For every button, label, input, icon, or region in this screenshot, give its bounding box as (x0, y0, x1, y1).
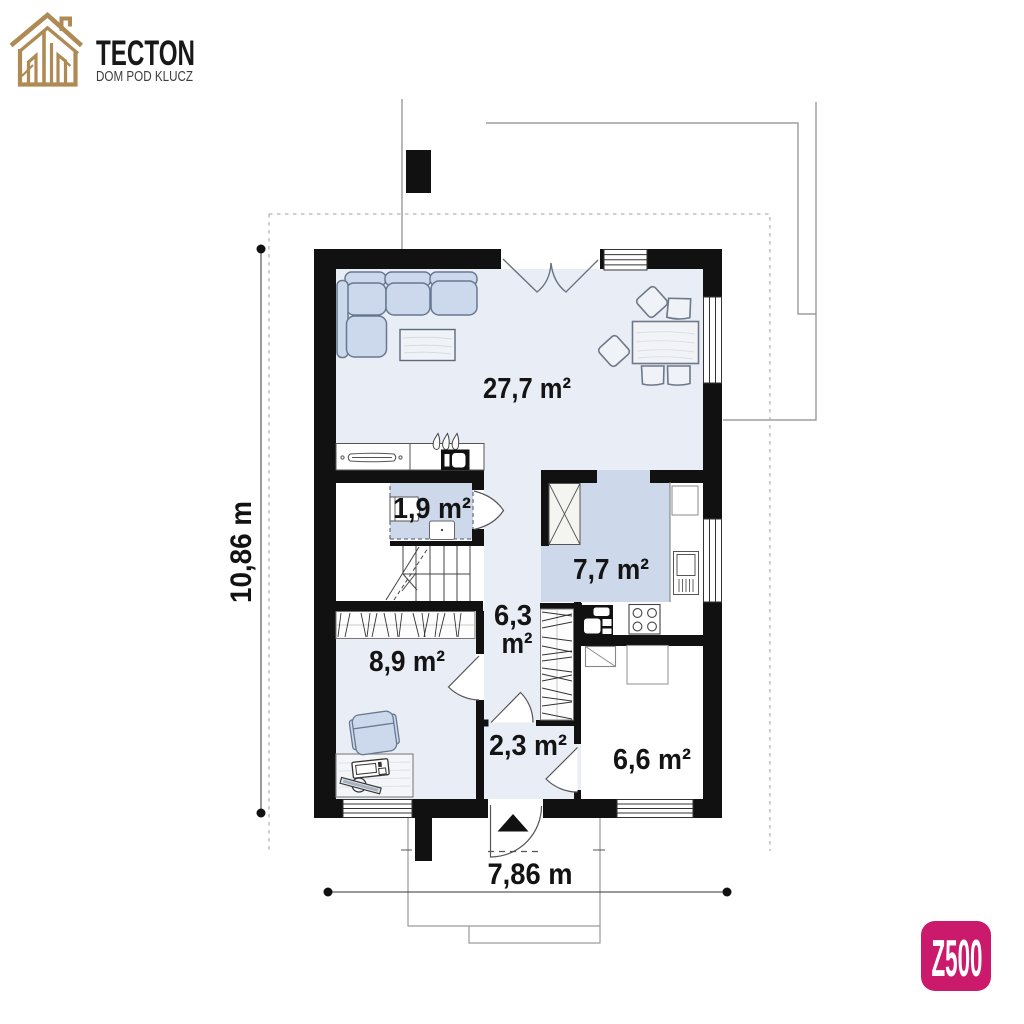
svg-text:2,3 m²: 2,3 m² (489, 730, 567, 762)
svg-text:6,6 m²: 6,6 m² (613, 744, 691, 776)
svg-text:1,9 m²: 1,9 m² (393, 493, 471, 525)
svg-text:7,86 m: 7,86 m (488, 858, 573, 891)
svg-text:27,7 m²: 27,7 m² (483, 373, 571, 405)
svg-text:DOM POD KLUCZ: DOM POD KLUCZ (96, 68, 193, 85)
svg-text:m²: m² (502, 628, 533, 660)
svg-text:8,9 m²: 8,9 m² (369, 646, 445, 678)
svg-text:10,86 m: 10,86 m (225, 501, 258, 603)
svg-text:Z500: Z500 (932, 930, 983, 988)
svg-text:7,7 m²: 7,7 m² (573, 554, 649, 586)
